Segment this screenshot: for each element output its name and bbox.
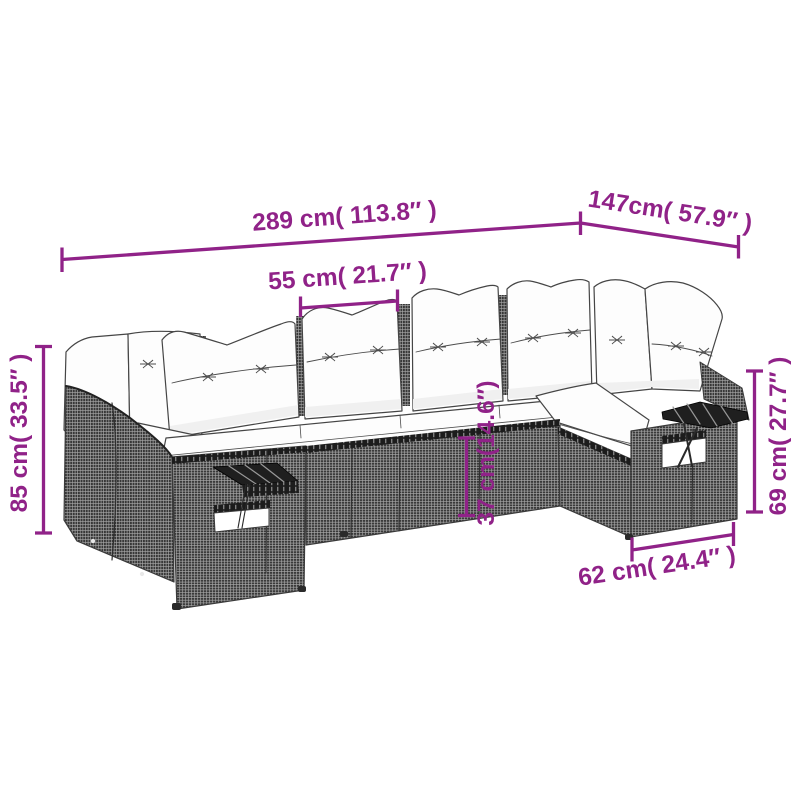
svg-text:147cm( 57.9″ ): 147cm( 57.9″ ) [586,186,754,238]
svg-text:55 cm( 21.7″ ): 55 cm( 21.7″ ) [267,258,427,296]
svg-text:289 cm( 113.8″ ): 289 cm( 113.8″ ) [251,196,437,236]
svg-text:85 cm( 33.5″ ): 85 cm( 33.5″ ) [6,354,33,513]
svg-text:37 cm(14.6″): 37 cm(14.6″) [473,380,500,525]
svg-text:62 cm( 24.4″ ): 62 cm( 24.4″ ) [576,541,737,591]
svg-text:69 cm( 27.7″ ): 69 cm( 27.7″ ) [765,357,792,516]
